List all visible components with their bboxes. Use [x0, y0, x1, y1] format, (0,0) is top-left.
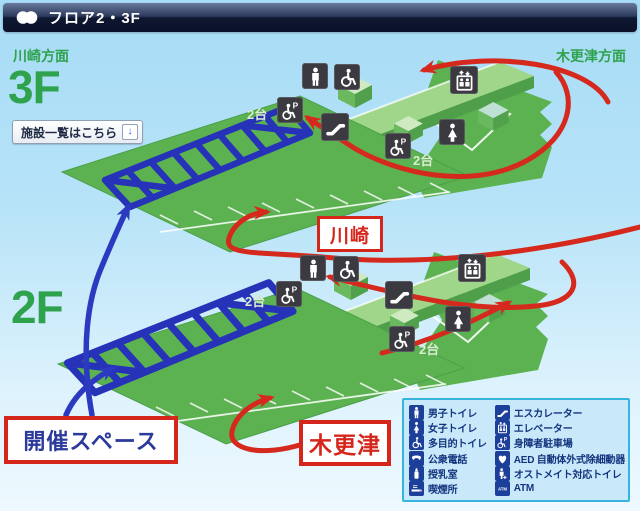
kisarazu-route-label: 木更津: [299, 420, 391, 466]
man-icon: [409, 405, 424, 420]
legend-item: 公衆電話: [409, 451, 490, 466]
legend-item-label: 男子トイレ: [428, 405, 477, 420]
event-space-label: 開催スペース: [4, 416, 178, 464]
legend-item: エレベーター: [495, 420, 625, 435]
escalator-icon-3f: [321, 113, 349, 141]
facility-list-button[interactable]: 施設一覧はこちら ↓: [12, 120, 143, 144]
legend-item-label: ATM: [514, 483, 534, 494]
atm-icon: [495, 481, 510, 496]
legend-item: ATM: [495, 481, 625, 496]
disabled-parking-icon-2f-left: [276, 281, 302, 307]
legend-item: 喫煙所: [409, 481, 490, 496]
legend-item: AED 自動体外式除細動器: [495, 451, 625, 466]
woman-icon: [409, 420, 424, 435]
disabled-parking-icon-3f-left: [277, 97, 303, 123]
parking-count-badge: 2台: [413, 150, 433, 169]
legend-item-label: オストメイト対応トイレ: [514, 466, 622, 481]
wheelchair-icon: [409, 435, 424, 450]
elevator-icon-2f: [458, 254, 486, 282]
direction-label-kisarazu: 木更津方面: [556, 46, 626, 66]
parking-count-badge: 2台: [419, 339, 439, 358]
page-title: フロア2・3F: [48, 7, 141, 28]
nursing-room-icon: [409, 466, 424, 481]
legend-item-label: エスカレーター: [514, 405, 583, 420]
floor-label-2f: 2F: [11, 284, 63, 330]
kawasaki-route-label: 川崎: [317, 216, 383, 252]
legend-item-label: 身障者駐車場: [514, 435, 573, 450]
legend-item-label: 授乳室: [428, 466, 457, 481]
legend-item-label: エレベーター: [514, 420, 573, 435]
ostomate-icon: [495, 466, 510, 481]
map-legend: 男子トイレ 女子トイレ 多目的トイレ 公衆電話 授乳室 喫煙所 エスカレーター: [402, 398, 630, 502]
legend-column-right: エスカレーター エレベーター 身障者駐車場 AED 自動体外式除細動器 オストメ…: [495, 405, 625, 496]
legend-item: エスカレーター: [495, 405, 625, 420]
female-toilet-icon-2f: [445, 306, 471, 332]
disabled-parking-icon-3f-right: [385, 133, 411, 159]
legend-item-label: 多目的トイレ: [428, 435, 487, 450]
aed-icon: [495, 451, 510, 466]
male-toilet-icon-2f: [300, 255, 326, 281]
parking-count-badge: 2台: [247, 104, 267, 123]
legend-item: 多目的トイレ: [409, 435, 490, 450]
male-toilet-icon-3f: [302, 63, 328, 89]
facility-list-button-label: 施設一覧はこちら: [21, 124, 117, 141]
legend-item: オストメイト対応トイレ: [495, 466, 625, 481]
legend-item: 女子トイレ: [409, 420, 490, 435]
legend-item: 授乳室: [409, 466, 490, 481]
legend-item-label: AED 自動体外式除細動器: [514, 451, 625, 466]
legend-item-label: 喫煙所: [428, 481, 457, 496]
legend-item: 男子トイレ: [409, 405, 490, 420]
page-header: フロア2・3F: [3, 3, 637, 32]
multipurpose-toilet-icon-3f: [334, 64, 360, 90]
parking-count-badge: 2台: [245, 291, 265, 310]
legend-item-label: 女子トイレ: [428, 420, 477, 435]
escalator-icon: [495, 405, 510, 420]
female-toilet-icon-3f: [439, 119, 465, 145]
disabled-parking-icon: [495, 435, 510, 450]
smoking-icon: [409, 481, 424, 496]
escalator-icon-2f: [385, 281, 413, 309]
site-logo-icon: [15, 10, 39, 25]
phone-icon: [409, 451, 424, 466]
legend-column-left: 男子トイレ 女子トイレ 多目的トイレ 公衆電話 授乳室 喫煙所: [409, 405, 490, 496]
legend-item-label: 公衆電話: [428, 451, 467, 466]
disabled-parking-icon-2f-right: [389, 326, 415, 352]
elevator-icon-3f: [450, 66, 478, 94]
multipurpose-toilet-icon-2f: [333, 256, 359, 282]
down-arrow-icon: ↓: [122, 124, 138, 140]
floor-label-3f: 3F: [8, 64, 60, 110]
elevator-icon: [495, 420, 510, 435]
legend-item: 身障者駐車場: [495, 435, 625, 450]
